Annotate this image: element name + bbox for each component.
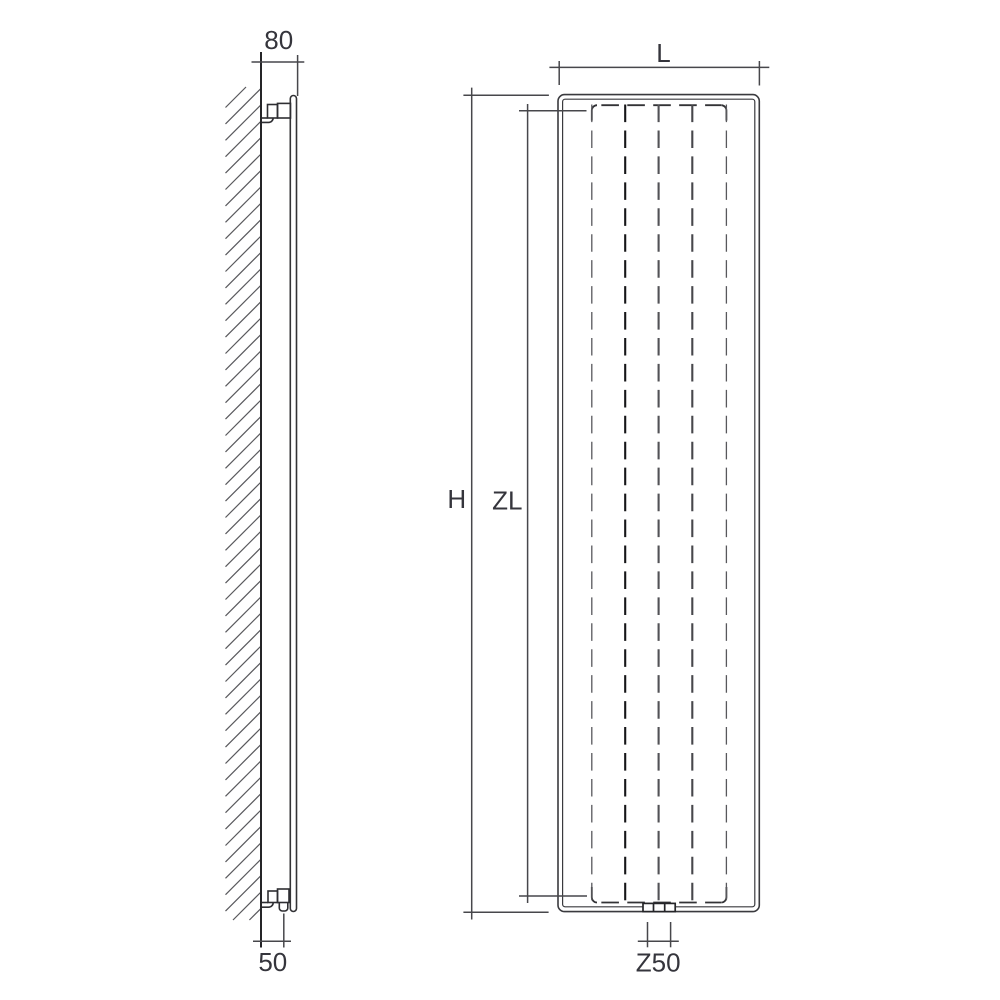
svg-text:Z50: Z50 [636,948,681,978]
svg-text:L: L [656,38,670,68]
svg-text:50: 50 [258,947,287,977]
svg-text:ZL: ZL [492,486,522,516]
svg-text:H: H [447,484,466,514]
svg-text:80: 80 [264,25,293,55]
